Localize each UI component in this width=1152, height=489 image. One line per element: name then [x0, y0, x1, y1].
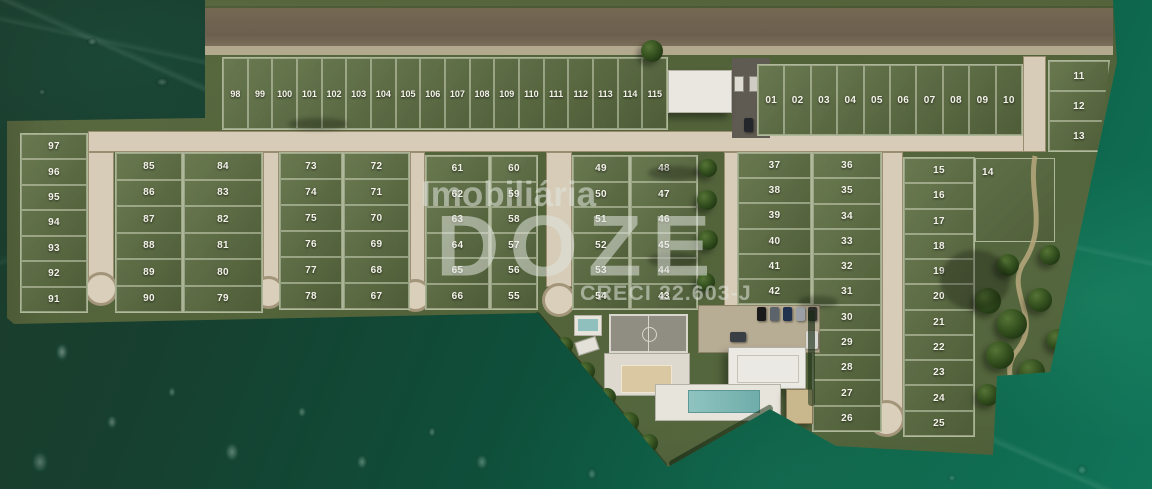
tree-shadow [648, 166, 700, 180]
tree [699, 159, 717, 177]
watermark-creci: CRECI 22.603-J [580, 283, 752, 305]
clubhouse-building [728, 347, 806, 389]
tree [557, 337, 573, 353]
tree-shadow [288, 118, 348, 130]
tree [577, 362, 595, 380]
basketball-court [609, 314, 688, 353]
clubhouse-roof-detail [737, 355, 799, 383]
court-center-line [648, 316, 649, 351]
site-plan-canvas: 9899100101102103104105106107108109110111… [0, 0, 1152, 489]
tree [641, 40, 663, 62]
boundary-hedge [808, 310, 815, 406]
tree [1028, 288, 1052, 312]
car [757, 307, 766, 321]
tree-shadow [940, 250, 1010, 310]
car [730, 332, 746, 342]
swimming-pool [688, 390, 760, 413]
tree [1047, 329, 1069, 351]
tree [1040, 245, 1060, 265]
tree [598, 388, 616, 406]
tree [997, 309, 1027, 339]
tree [1019, 359, 1045, 385]
court-center-circle [642, 327, 657, 342]
tree-shadow [798, 296, 838, 308]
car [796, 307, 805, 321]
car [770, 307, 779, 321]
tree [986, 341, 1014, 369]
watermark-brand-main: DOZE [436, 203, 720, 289]
kids-pool [578, 319, 598, 331]
tree [1010, 398, 1034, 422]
tree [977, 384, 999, 406]
tree [640, 434, 658, 452]
tree [619, 412, 639, 432]
car [783, 307, 792, 321]
